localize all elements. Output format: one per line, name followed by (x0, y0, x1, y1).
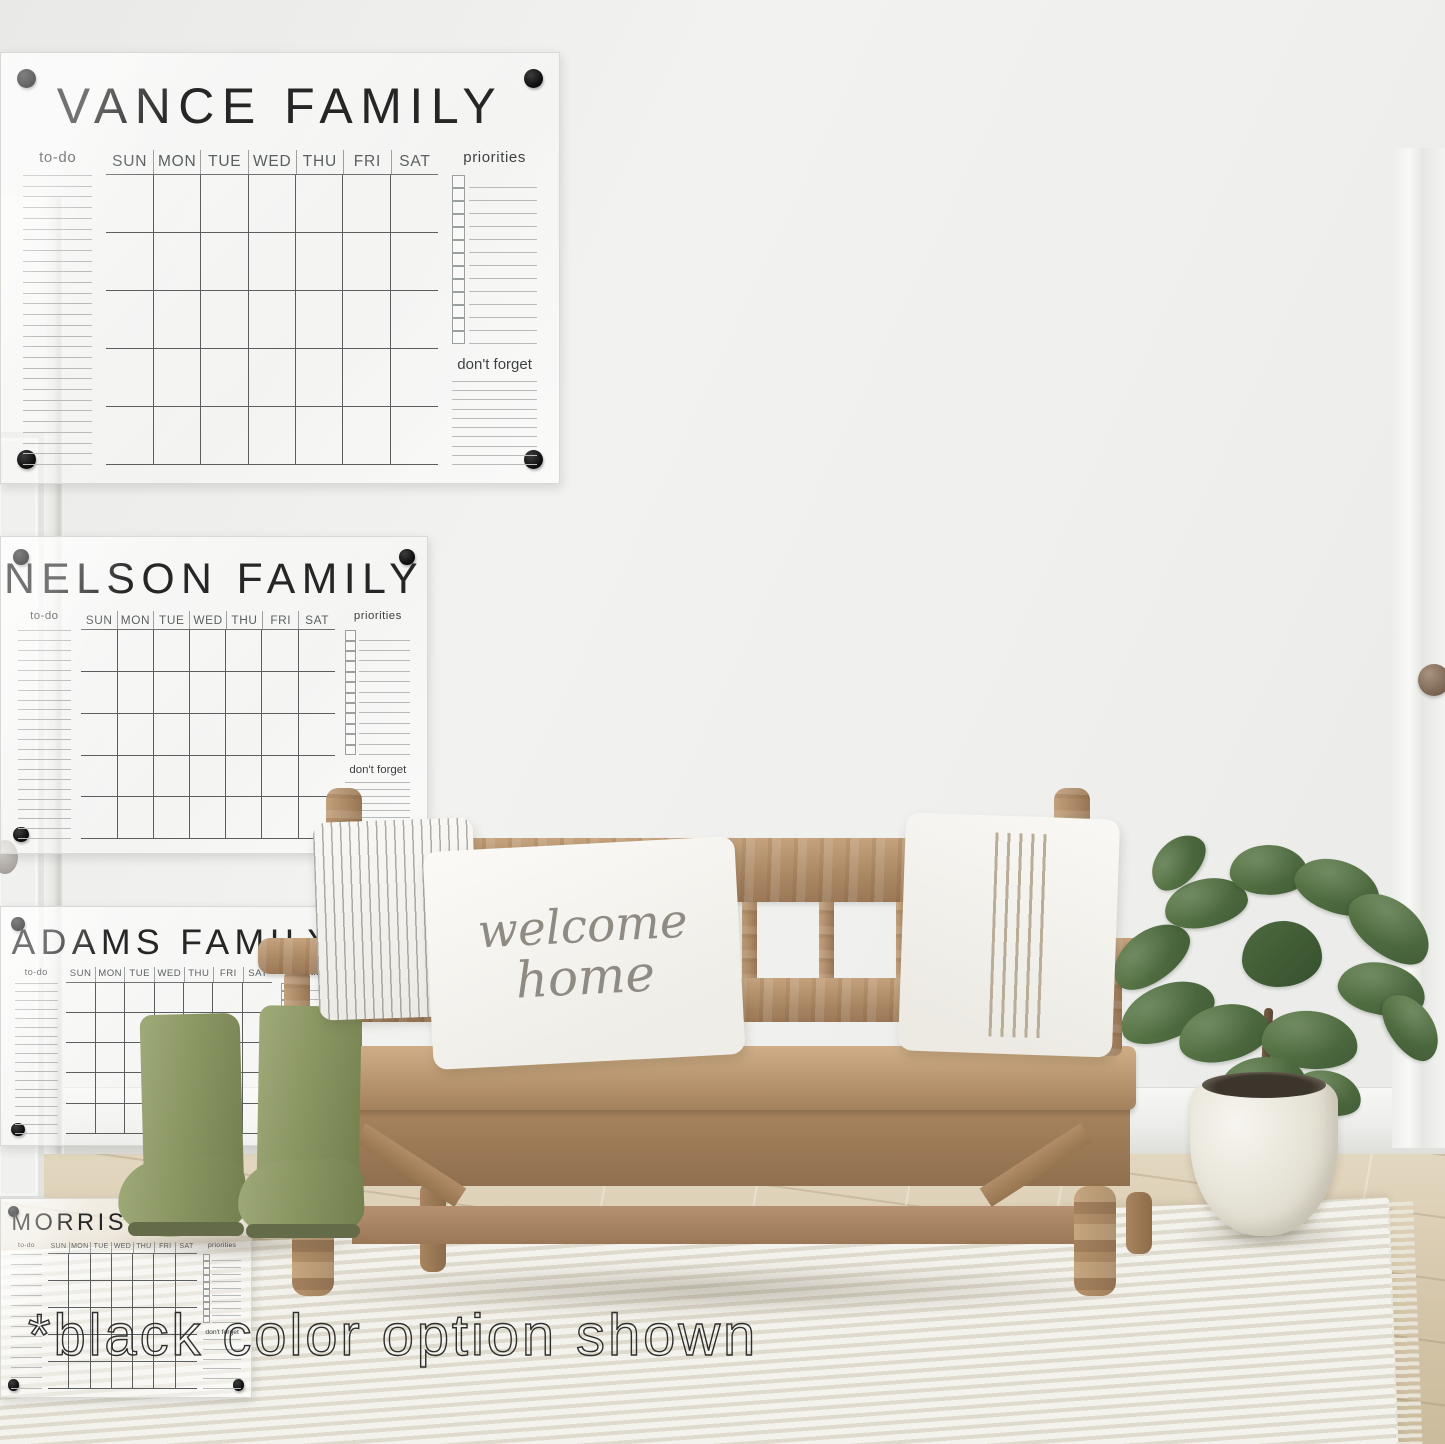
ruled-line (15, 1080, 58, 1081)
ruled-line (18, 700, 71, 701)
weekday-label: SUN (81, 611, 116, 629)
day-cell (118, 714, 154, 756)
ruled-line (23, 218, 92, 219)
day-cell (154, 672, 190, 714)
weekday-label: MON (95, 967, 125, 982)
ruled-line (23, 432, 92, 433)
ruled-line (18, 828, 71, 829)
priority-row (345, 641, 410, 651)
bench-rear-leg-right (1126, 1192, 1152, 1254)
ruled-line (452, 390, 537, 391)
day-cell (343, 291, 390, 349)
day-cell (226, 630, 262, 672)
day-cell (154, 630, 190, 672)
day-cell (226, 756, 262, 798)
priorities-column: prioritiesdon't forget (452, 149, 537, 465)
weekday-label: SUN (66, 967, 95, 982)
day-cell (249, 407, 296, 465)
weekday-label: SAT (391, 150, 439, 174)
priority-row (452, 292, 537, 305)
priority-checkbox (345, 724, 355, 734)
ruled-line (23, 261, 92, 262)
ruled-line (23, 229, 92, 230)
ruled-line (23, 346, 92, 347)
ruled-line (23, 368, 92, 369)
day-cell (154, 175, 201, 233)
todo-column: to-do (23, 149, 92, 465)
ruled-line (18, 749, 71, 750)
day-cell (262, 672, 298, 714)
priority-row (345, 713, 410, 723)
day-cell (154, 714, 190, 756)
priority-checkbox (452, 305, 465, 318)
ruled-line (15, 1044, 58, 1045)
bench-stretcher (352, 1206, 1096, 1244)
ruled-line (23, 443, 92, 444)
ruled-line (23, 453, 92, 454)
ruled-line (359, 754, 410, 755)
ruled-line (15, 1115, 58, 1116)
day-cell (299, 714, 335, 756)
priority-checkbox (452, 201, 465, 214)
ruled-line (23, 410, 92, 411)
ruled-line (11, 1295, 42, 1296)
priority-row (452, 240, 537, 253)
ruled-line (18, 779, 71, 780)
calendar-board-nelson: 38" x 26"NELSON FAMILYto-doSUNMONTUEWEDT… (0, 484, 428, 854)
ruled-line (18, 630, 71, 631)
day-cell (391, 175, 438, 233)
day-cell (299, 672, 335, 714)
ruled-line (15, 1009, 58, 1010)
weekday-label: SAT (298, 611, 334, 629)
day-cell (249, 175, 296, 233)
priority-row (345, 630, 410, 640)
priority-row (345, 724, 410, 734)
day-cell (343, 349, 390, 407)
day-cell (299, 630, 335, 672)
priority-row (345, 672, 410, 682)
ruled-line (23, 303, 92, 304)
priority-row (345, 693, 410, 703)
day-cell (81, 756, 117, 798)
ruled-line (11, 1264, 42, 1265)
ruled-line (11, 1254, 42, 1255)
day-cell (190, 714, 226, 756)
ruled-line (469, 343, 537, 344)
weekday-label: FRI (213, 967, 243, 982)
priority-checkbox (452, 292, 465, 305)
month-grid (106, 175, 438, 465)
day-cell (154, 797, 190, 839)
ruled-line (18, 838, 71, 839)
priority-checkbox (452, 188, 465, 201)
ruled-line (18, 769, 71, 770)
day-cell (391, 291, 438, 349)
day-cell (81, 714, 117, 756)
priority-row (345, 745, 410, 755)
weekday-label: MON (69, 1242, 90, 1253)
ruled-line (18, 690, 71, 691)
day-cell (296, 175, 343, 233)
priority-row (345, 703, 410, 713)
todo-lines (18, 630, 71, 839)
weekday-label: TUE (124, 967, 154, 982)
day-cell (190, 630, 226, 672)
priority-row (203, 1261, 241, 1268)
day-cell (391, 407, 438, 465)
day-cell (106, 349, 153, 407)
priority-checkbox (203, 1275, 210, 1282)
plant-pot-mouth (1202, 1072, 1326, 1098)
acrylic-panel: VANCE FAMILYto-doSUNMONTUEWEDTHUFRISATpr… (0, 52, 560, 484)
priority-checkbox (452, 266, 465, 279)
ruled-line (345, 782, 410, 783)
day-cell (106, 233, 153, 291)
todo-lines (23, 175, 92, 465)
ruled-line (11, 1377, 42, 1378)
priority-row (452, 266, 537, 279)
ruled-line (15, 1018, 58, 1019)
ruled-line (11, 1274, 42, 1275)
day-cell (249, 233, 296, 291)
ruled-line (11, 1285, 42, 1286)
pillow-striped-right (898, 812, 1120, 1057)
day-cell (66, 1043, 95, 1073)
day-cell (262, 630, 298, 672)
bench-back-slat (742, 902, 757, 982)
day-cell (96, 983, 125, 1013)
priority-checkbox (452, 279, 465, 292)
todo-label: to-do (15, 967, 58, 983)
priority-row (203, 1282, 241, 1289)
priority-checkbox (203, 1282, 210, 1289)
day-cell (226, 797, 262, 839)
day-cell (69, 1254, 90, 1281)
day-cell (96, 1043, 125, 1073)
priority-checkbox (345, 682, 355, 692)
ruled-line (23, 378, 92, 379)
day-cell (81, 672, 117, 714)
day-cell (262, 797, 298, 839)
priority-row (203, 1268, 241, 1275)
day-cell (81, 630, 117, 672)
priority-row (203, 1289, 241, 1296)
ruled-line (23, 389, 92, 390)
day-cell (118, 797, 154, 839)
ruled-line (18, 809, 71, 810)
day-cell (343, 175, 390, 233)
priority-checkbox (203, 1289, 210, 1296)
ruled-line (15, 1097, 58, 1098)
ruled-line (18, 789, 71, 790)
caption-text: *black color option shown (28, 1302, 758, 1369)
todo-label: to-do (23, 149, 92, 175)
ruled-line (15, 1071, 58, 1072)
priority-checkbox (345, 734, 355, 744)
priority-checkbox (452, 253, 465, 266)
ruled-line (23, 464, 92, 465)
day-cell (96, 1104, 125, 1134)
ruled-line (23, 271, 92, 272)
ruled-line (452, 381, 537, 382)
weekday-header: SUNMONTUEWEDTHUFRISAT (66, 967, 272, 983)
dont-forget-label: don't forget (345, 764, 410, 776)
ruled-line (452, 418, 537, 419)
todo-column: to-do (18, 610, 71, 839)
priority-checkbox (203, 1261, 210, 1268)
board-title: VANCE FAMILY (1, 77, 559, 135)
ruled-line (23, 207, 92, 208)
weekday-label: MON (153, 150, 201, 174)
day-cell (154, 233, 201, 291)
priority-row (345, 661, 410, 671)
ruled-line (18, 739, 71, 740)
ruled-line (15, 1133, 58, 1134)
day-cell (96, 1013, 125, 1043)
weekday-label: FRI (343, 150, 391, 174)
weekday-label: THU (184, 967, 214, 982)
ruled-line (15, 1036, 58, 1037)
todo-label: to-do (18, 610, 71, 630)
ruled-line (23, 282, 92, 283)
priority-row (452, 279, 537, 292)
day-cell (66, 1073, 95, 1103)
weekday-label: TUE (200, 150, 248, 174)
ruled-line (452, 446, 537, 447)
priority-checkbox (345, 630, 355, 640)
day-cell (91, 1254, 112, 1281)
day-cell (106, 407, 153, 465)
ruled-line (18, 709, 71, 710)
weekday-label: SUN (106, 150, 153, 174)
day-cell (343, 233, 390, 291)
day-cell (66, 1104, 95, 1134)
ruled-line (23, 186, 92, 187)
priority-checkbox (345, 651, 355, 661)
ruled-line (23, 196, 92, 197)
day-cell (112, 1254, 133, 1281)
priority-checkbox (345, 745, 355, 755)
priorities-checklist (345, 630, 410, 755)
ruled-line (452, 427, 537, 428)
ruled-line (18, 650, 71, 651)
day-cell (296, 291, 343, 349)
ruled-line (23, 175, 92, 176)
weekday-label: THU (296, 150, 344, 174)
priority-checkbox (345, 661, 355, 671)
priority-row (452, 227, 537, 240)
ruled-line (452, 464, 537, 465)
ruled-line (23, 239, 92, 240)
priority-checkbox (452, 318, 465, 331)
ruled-line (203, 1378, 241, 1379)
ruled-line (18, 640, 71, 641)
day-cell (155, 983, 184, 1013)
day-cell (249, 349, 296, 407)
ruled-line (23, 293, 92, 294)
ruled-line (452, 409, 537, 410)
rain-boot-right-sole (246, 1224, 360, 1238)
priority-checkbox (452, 240, 465, 253)
ruled-line (452, 399, 537, 400)
day-cell (154, 1254, 175, 1281)
day-cell (154, 349, 201, 407)
weekday-label: WED (248, 150, 296, 174)
day-cell (154, 407, 201, 465)
day-cell (125, 983, 154, 1013)
priority-row (452, 214, 537, 227)
day-cell (96, 1073, 125, 1103)
ruled-line (15, 1000, 58, 1001)
day-cell (154, 291, 201, 349)
ruled-line (23, 325, 92, 326)
plant-leaf (1242, 921, 1322, 987)
day-cell (201, 233, 248, 291)
ruled-line (18, 818, 71, 819)
ruled-line (23, 357, 92, 358)
priority-row (345, 651, 410, 661)
weekday-label: THU (226, 611, 262, 629)
day-cell (201, 349, 248, 407)
ruled-line (18, 719, 71, 720)
day-cell (106, 291, 153, 349)
priority-row (452, 175, 537, 188)
ruled-line (452, 455, 537, 456)
priority-row (452, 318, 537, 331)
pillow-text-line2: home (514, 948, 656, 1008)
priorities-checklist (452, 175, 537, 344)
day-cell (201, 407, 248, 465)
day-cell (296, 349, 343, 407)
priority-row (452, 253, 537, 266)
bench-back-slat (819, 902, 834, 982)
day-cell (48, 1254, 69, 1281)
day-cell (391, 233, 438, 291)
day-cell (226, 672, 262, 714)
weekday-header: SUNMONTUEWEDTHUFRISAT (106, 149, 438, 175)
priority-row (452, 305, 537, 318)
weekday-label: WED (154, 967, 184, 982)
calendar-column: SUNMONTUEWEDTHUFRISAT (106, 149, 438, 465)
day-cell (118, 672, 154, 714)
priority-row (452, 201, 537, 214)
priority-row (345, 734, 410, 744)
product-photo-scene: 47.5" x 36"VANCE FAMILYto-doSUNMONTUEWED… (0, 0, 1445, 1444)
day-cell (118, 756, 154, 798)
day-cell (133, 1254, 154, 1281)
priorities-label: priorities (345, 610, 410, 630)
dont-forget-label: don't forget (452, 356, 537, 373)
day-cell (391, 349, 438, 407)
ruled-line (15, 1106, 58, 1107)
ruled-line (15, 1053, 58, 1054)
ruled-line (18, 799, 71, 800)
board-title: NELSON FAMILY (1, 555, 427, 604)
rain-boot-left-sole (128, 1222, 244, 1236)
acrylic-panel: NELSON FAMILYto-doSUNMONTUEWEDTHUFRISATp… (0, 536, 428, 854)
priority-checkbox (345, 713, 355, 723)
day-cell (201, 175, 248, 233)
day-cell (249, 291, 296, 349)
board-body: to-doSUNMONTUEWEDTHUFRISATprioritiesdon'… (23, 149, 537, 465)
ruled-line (23, 336, 92, 337)
weekday-label: WED (189, 611, 225, 629)
weekday-label: SUN (48, 1242, 68, 1253)
ruled-line (203, 1388, 241, 1389)
priority-row (203, 1275, 241, 1282)
day-cell (190, 756, 226, 798)
priority-checkbox (203, 1268, 210, 1275)
todo-lines (15, 983, 58, 1134)
ruled-line (18, 729, 71, 730)
weekday-label: FRI (262, 611, 298, 629)
day-cell (118, 630, 154, 672)
weekday-header: SUNMONTUEWEDTHUFRISAT (81, 610, 334, 630)
dont-forget-lines (452, 381, 537, 465)
priority-checkbox (345, 703, 355, 713)
ruled-line (11, 1388, 42, 1389)
month-grid (81, 630, 334, 839)
ruled-line (15, 991, 58, 992)
day-cell (106, 175, 153, 233)
pillow-welcome-home: welcome home (423, 836, 746, 1070)
priority-checkbox (345, 693, 355, 703)
ruled-line (452, 436, 537, 437)
ruled-line (18, 660, 71, 661)
ruled-line (15, 1124, 58, 1125)
day-cell (66, 983, 95, 1013)
day-cell (262, 756, 298, 798)
priority-row (452, 188, 537, 201)
ruled-line (18, 680, 71, 681)
priority-checkbox (452, 331, 465, 344)
day-cell (262, 714, 298, 756)
day-cell (296, 407, 343, 465)
day-cell (296, 233, 343, 291)
day-cell (184, 983, 213, 1013)
day-cell (81, 797, 117, 839)
ruled-line (18, 759, 71, 760)
ruled-line (23, 421, 92, 422)
day-cell (226, 714, 262, 756)
todo-column: to-do (15, 967, 58, 1134)
day-cell (190, 797, 226, 839)
priority-checkbox (345, 641, 355, 651)
day-cell (213, 983, 242, 1013)
ruled-line (23, 250, 92, 251)
day-cell (154, 756, 190, 798)
priority-checkbox (452, 214, 465, 227)
door-knob-right (1418, 664, 1445, 696)
ruled-line (15, 983, 58, 984)
ruled-line (15, 1062, 58, 1063)
ruled-line (18, 670, 71, 671)
priority-checkbox (452, 227, 465, 240)
priority-checkbox (345, 672, 355, 682)
ruled-line (23, 314, 92, 315)
day-cell (66, 1013, 95, 1043)
day-cell (343, 407, 390, 465)
day-cell (201, 291, 248, 349)
todo-label: to-do (11, 1242, 42, 1254)
weekday-label: TUE (153, 611, 189, 629)
bench-front-leg-right (1074, 1186, 1116, 1296)
ruled-line (15, 1027, 58, 1028)
ruled-line (15, 1089, 58, 1090)
priorities-label: priorities (452, 149, 537, 175)
pillow-stripe-band (988, 832, 1053, 1039)
